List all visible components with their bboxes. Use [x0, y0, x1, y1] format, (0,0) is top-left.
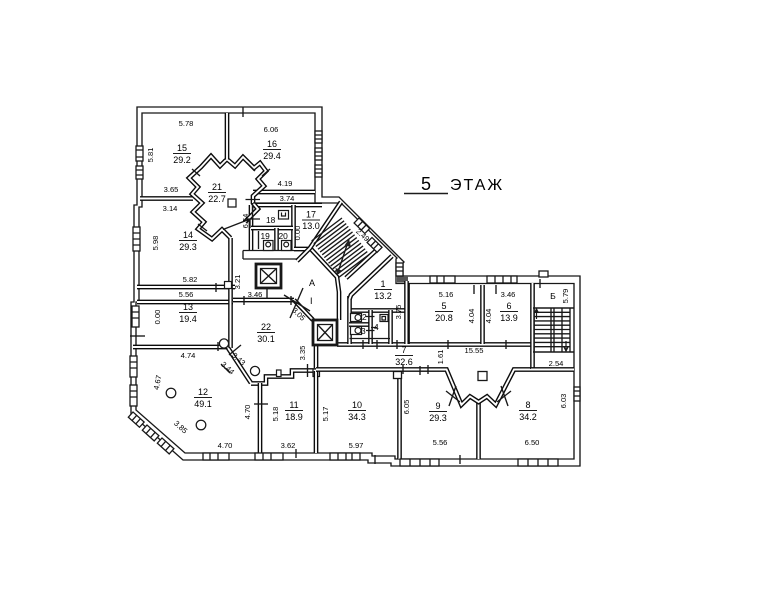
svg-text:20: 20 [279, 231, 289, 241]
svg-text:5.98: 5.98 [151, 236, 160, 251]
svg-text:6.06: 6.06 [264, 125, 279, 134]
svg-text:3: 3 [361, 326, 366, 336]
svg-text:8: 8 [525, 400, 530, 410]
svg-text:13.9: 13.9 [500, 313, 518, 323]
svg-text:6.05: 6.05 [402, 400, 411, 415]
svg-text:5.17: 5.17 [321, 407, 330, 422]
svg-text:5.18: 5.18 [271, 407, 280, 422]
svg-text:I: I [310, 296, 313, 306]
svg-text:3.14: 3.14 [163, 204, 178, 213]
svg-text:2.54: 2.54 [549, 359, 564, 368]
svg-text:29.4: 29.4 [263, 151, 281, 161]
svg-text:5.97: 5.97 [349, 441, 364, 450]
svg-text:15.55: 15.55 [464, 346, 483, 355]
svg-text:A: A [309, 278, 315, 288]
svg-text:17: 17 [306, 210, 316, 220]
svg-text:12: 12 [198, 387, 208, 397]
svg-text:13.2: 13.2 [374, 291, 392, 301]
svg-text:22.7: 22.7 [208, 194, 226, 204]
svg-text:1: 1 [380, 279, 385, 289]
svg-text:49.1: 49.1 [194, 399, 212, 409]
svg-text:5: 5 [441, 301, 446, 311]
svg-text:22: 22 [261, 322, 271, 332]
svg-text:18: 18 [266, 215, 276, 225]
svg-text:3.74: 3.74 [280, 194, 295, 203]
svg-text:3.46: 3.46 [248, 290, 263, 299]
svg-text:4.19: 4.19 [278, 179, 293, 188]
svg-text:34.2: 34.2 [519, 412, 537, 422]
svg-text:13: 13 [183, 302, 193, 312]
svg-text:0.00: 0.00 [293, 226, 302, 241]
svg-text:13.0: 13.0 [302, 221, 320, 231]
svg-text:3.46: 3.46 [501, 290, 516, 299]
svg-text:6.03: 6.03 [559, 394, 568, 409]
svg-text:18.9: 18.9 [285, 412, 303, 422]
svg-text:15: 15 [177, 143, 187, 153]
svg-text:5.81: 5.81 [146, 148, 155, 163]
svg-text:3.65: 3.65 [164, 185, 179, 194]
svg-text:1.61: 1.61 [436, 350, 445, 365]
svg-text:16: 16 [267, 139, 277, 149]
svg-text:5.16: 5.16 [439, 290, 454, 299]
svg-text:14: 14 [183, 230, 193, 240]
svg-text:32.6: 32.6 [395, 357, 413, 367]
svg-text:6.54: 6.54 [241, 214, 250, 229]
svg-text:4.04: 4.04 [484, 309, 493, 324]
svg-text:ЭТАЖ: ЭТАЖ [450, 177, 504, 194]
svg-text:0.00: 0.00 [153, 310, 162, 325]
svg-text:5.82: 5.82 [183, 275, 198, 284]
svg-text:9: 9 [435, 401, 440, 411]
svg-text:3.75: 3.75 [394, 305, 403, 320]
svg-text:5.56: 5.56 [433, 438, 448, 447]
svg-text:5.78: 5.78 [179, 119, 194, 128]
svg-text:6: 6 [506, 301, 511, 311]
svg-text:20.8: 20.8 [435, 313, 453, 323]
svg-text:7: 7 [401, 345, 406, 355]
svg-text:29.3: 29.3 [179, 242, 197, 252]
svg-text:3.62: 3.62 [281, 441, 296, 450]
svg-text:4.74: 4.74 [181, 351, 196, 360]
svg-text:Б: Б [550, 291, 556, 301]
svg-text:19: 19 [261, 231, 271, 241]
svg-text:4: 4 [374, 322, 379, 332]
svg-text:29.3: 29.3 [429, 413, 447, 423]
svg-text:4.70: 4.70 [218, 441, 233, 450]
svg-text:19.4: 19.4 [179, 314, 197, 324]
svg-text:6.50: 6.50 [525, 438, 540, 447]
svg-text:3.21: 3.21 [233, 275, 242, 290]
svg-text:29.2: 29.2 [173, 155, 191, 165]
svg-text:34.3: 34.3 [348, 412, 366, 422]
svg-text:21: 21 [212, 182, 222, 192]
svg-text:5.56: 5.56 [179, 290, 194, 299]
svg-text:4.04: 4.04 [467, 309, 476, 324]
svg-text:4.70: 4.70 [243, 405, 252, 420]
svg-text:5: 5 [421, 174, 431, 194]
svg-text:30.1: 30.1 [257, 334, 275, 344]
svg-text:2: 2 [362, 312, 367, 322]
svg-text:11: 11 [289, 400, 298, 410]
svg-text:3.35: 3.35 [298, 346, 307, 361]
svg-text:10: 10 [352, 400, 362, 410]
svg-text:5.79: 5.79 [561, 289, 570, 304]
